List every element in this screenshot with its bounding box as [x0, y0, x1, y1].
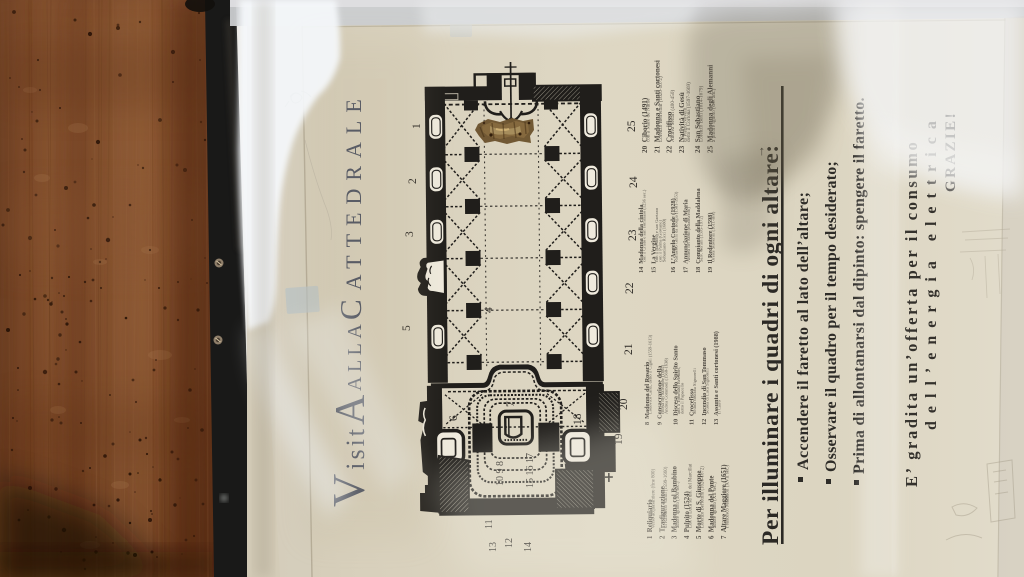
svg-text:18: 18: [572, 413, 584, 425]
svg-text:Francesco Mazzuoli (XVII sec.): Francesco Mazzuoli (XVII sec.): [725, 465, 730, 528]
svg-text:Andrea Sellari (400-450): Andrea Sellari (400-450): [669, 90, 676, 142]
svg-text:4: 4: [483, 307, 495, 313]
svg-text:25: 25: [626, 120, 638, 132]
svg-text:Scuola di Luca Signorelli: Scuola di Luca Signorelli: [704, 367, 709, 414]
svg-text:21: 21: [623, 343, 635, 355]
svg-text:detto il Papacello: detto il Papacello: [680, 382, 685, 414]
svg-text:con il Cristo e san Tommaso (1: con il Cristo e san Tommaso (1236 sec.): [642, 189, 647, 262]
svg-text:Oreste Stoverini (1611-Bre): Oreste Stoverini (1611-Bre): [711, 211, 716, 262]
svg-text:20: 20: [618, 398, 630, 410]
svg-text:Sebastiano Ricci (1680): Sebastiano Ricci (1680): [661, 218, 666, 262]
svg-text:Lorenzo Berrettini (1620-1672): Lorenzo Berrettini (1620-1672): [657, 76, 664, 142]
svg-text:22: 22: [624, 282, 636, 294]
svg-text:Osservare il quadro per il tem: Osservare il quadro per il tempo desider…: [823, 161, 840, 472]
svg-text:Accendere il faretto al lato d: Accendere il faretto al lato dell’altare…: [795, 192, 812, 470]
svg-text:24: 24: [628, 176, 640, 188]
svg-text:Raffaello Ghini da Borgia (158: Raffaello Ghini da Borgia (1581-1553): [674, 191, 679, 262]
svg-text:Salv. Gerum (1595-1972): Salv. Gerum (1595-1972): [698, 215, 703, 262]
svg-text:Andrea del Sarto (manoscritti): Andrea del Sarto (manoscritti): [686, 207, 691, 262]
svg-text:E’ gradita un’offerta per il c: E’ gradita un’offerta per il consumo: [902, 140, 921, 487]
svg-text:7: 7: [505, 401, 517, 407]
svg-text:Il Cairo: Il Cairo: [717, 399, 722, 414]
svg-text:Scuola toscana Signorelli: Scuola toscana Signorelli: [692, 368, 697, 414]
svg-text:6: 6: [448, 415, 460, 421]
svg-text:Andrea Commodi (1560-1638): Andrea Commodi (1560-1638): [664, 358, 669, 414]
svg-text:Lorenzo Berrettini (1620-1672): Lorenzo Berrettini (1620-1672): [701, 466, 706, 528]
svg-text:Lor. di Luca su dis. del Marci: Lor. di Luca su dis. del Marcillat: [688, 463, 693, 528]
svg-text:con a Mare de Nume: con a Mare de Nume: [646, 98, 652, 142]
svg-text:autore ignoto (XII sec.): autore ignoto (XII sec.): [713, 482, 718, 528]
